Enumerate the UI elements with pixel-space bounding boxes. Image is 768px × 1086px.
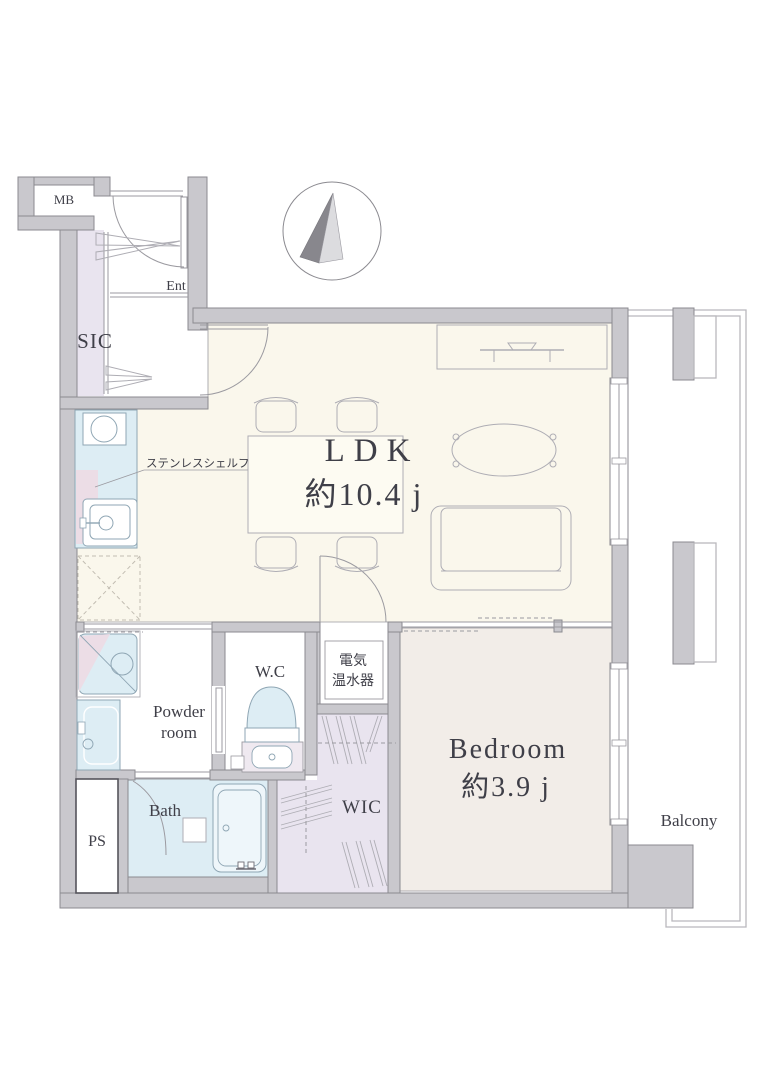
kitchen-sink — [80, 499, 137, 546]
window-bedroom — [610, 663, 628, 825]
label-bedroom-size: 約3.9 j — [461, 771, 551, 803]
label-powder-1: Powder — [153, 702, 205, 721]
label-ldk: LDK — [325, 433, 420, 469]
washing-machine — [76, 631, 140, 697]
label-heater-1: 電気 — [339, 653, 367, 669]
balcony-partition — [694, 316, 716, 378]
room-sic-floor — [77, 230, 104, 396]
label-balcony: Balcony — [661, 811, 718, 830]
paper-holder — [231, 756, 244, 769]
label-bath: Bath — [149, 801, 182, 820]
window-ldk — [610, 378, 628, 545]
floor-plan: MB Ent SIC LDK 約10.4 j ステンレスシェルフ W.C 電気 … — [0, 0, 768, 1086]
label-wic: WIC — [342, 797, 382, 818]
bathtub — [213, 784, 266, 872]
label-ent: Ent — [166, 279, 186, 294]
label-wc: W.C — [255, 662, 285, 681]
north-compass-icon — [283, 182, 381, 280]
vanity-sink — [77, 700, 120, 770]
wc-door — [216, 688, 222, 752]
label-shelf-note: ステンレスシェルフ — [146, 458, 250, 470]
label-powder-2: room — [161, 723, 197, 742]
balcony-pillar — [673, 308, 694, 380]
stove — [83, 413, 126, 445]
label-mb: MB — [54, 192, 75, 207]
label-heater-2: 温水器 — [332, 673, 374, 689]
label-ldk-size: 約10.4 j — [305, 476, 424, 512]
shoe-shelf-icon — [96, 233, 180, 390]
heater-box — [325, 641, 383, 699]
label-sic: SIC — [77, 329, 113, 353]
kitchen-counter — [75, 410, 137, 548]
toilet — [231, 687, 303, 772]
label-bedroom: Bedroom — [449, 734, 567, 765]
label-ps: PS — [88, 833, 106, 850]
balcony-partition — [694, 543, 716, 662]
balcony-pillar — [673, 542, 694, 664]
front-door — [110, 191, 187, 268]
bath-stool — [183, 818, 206, 842]
